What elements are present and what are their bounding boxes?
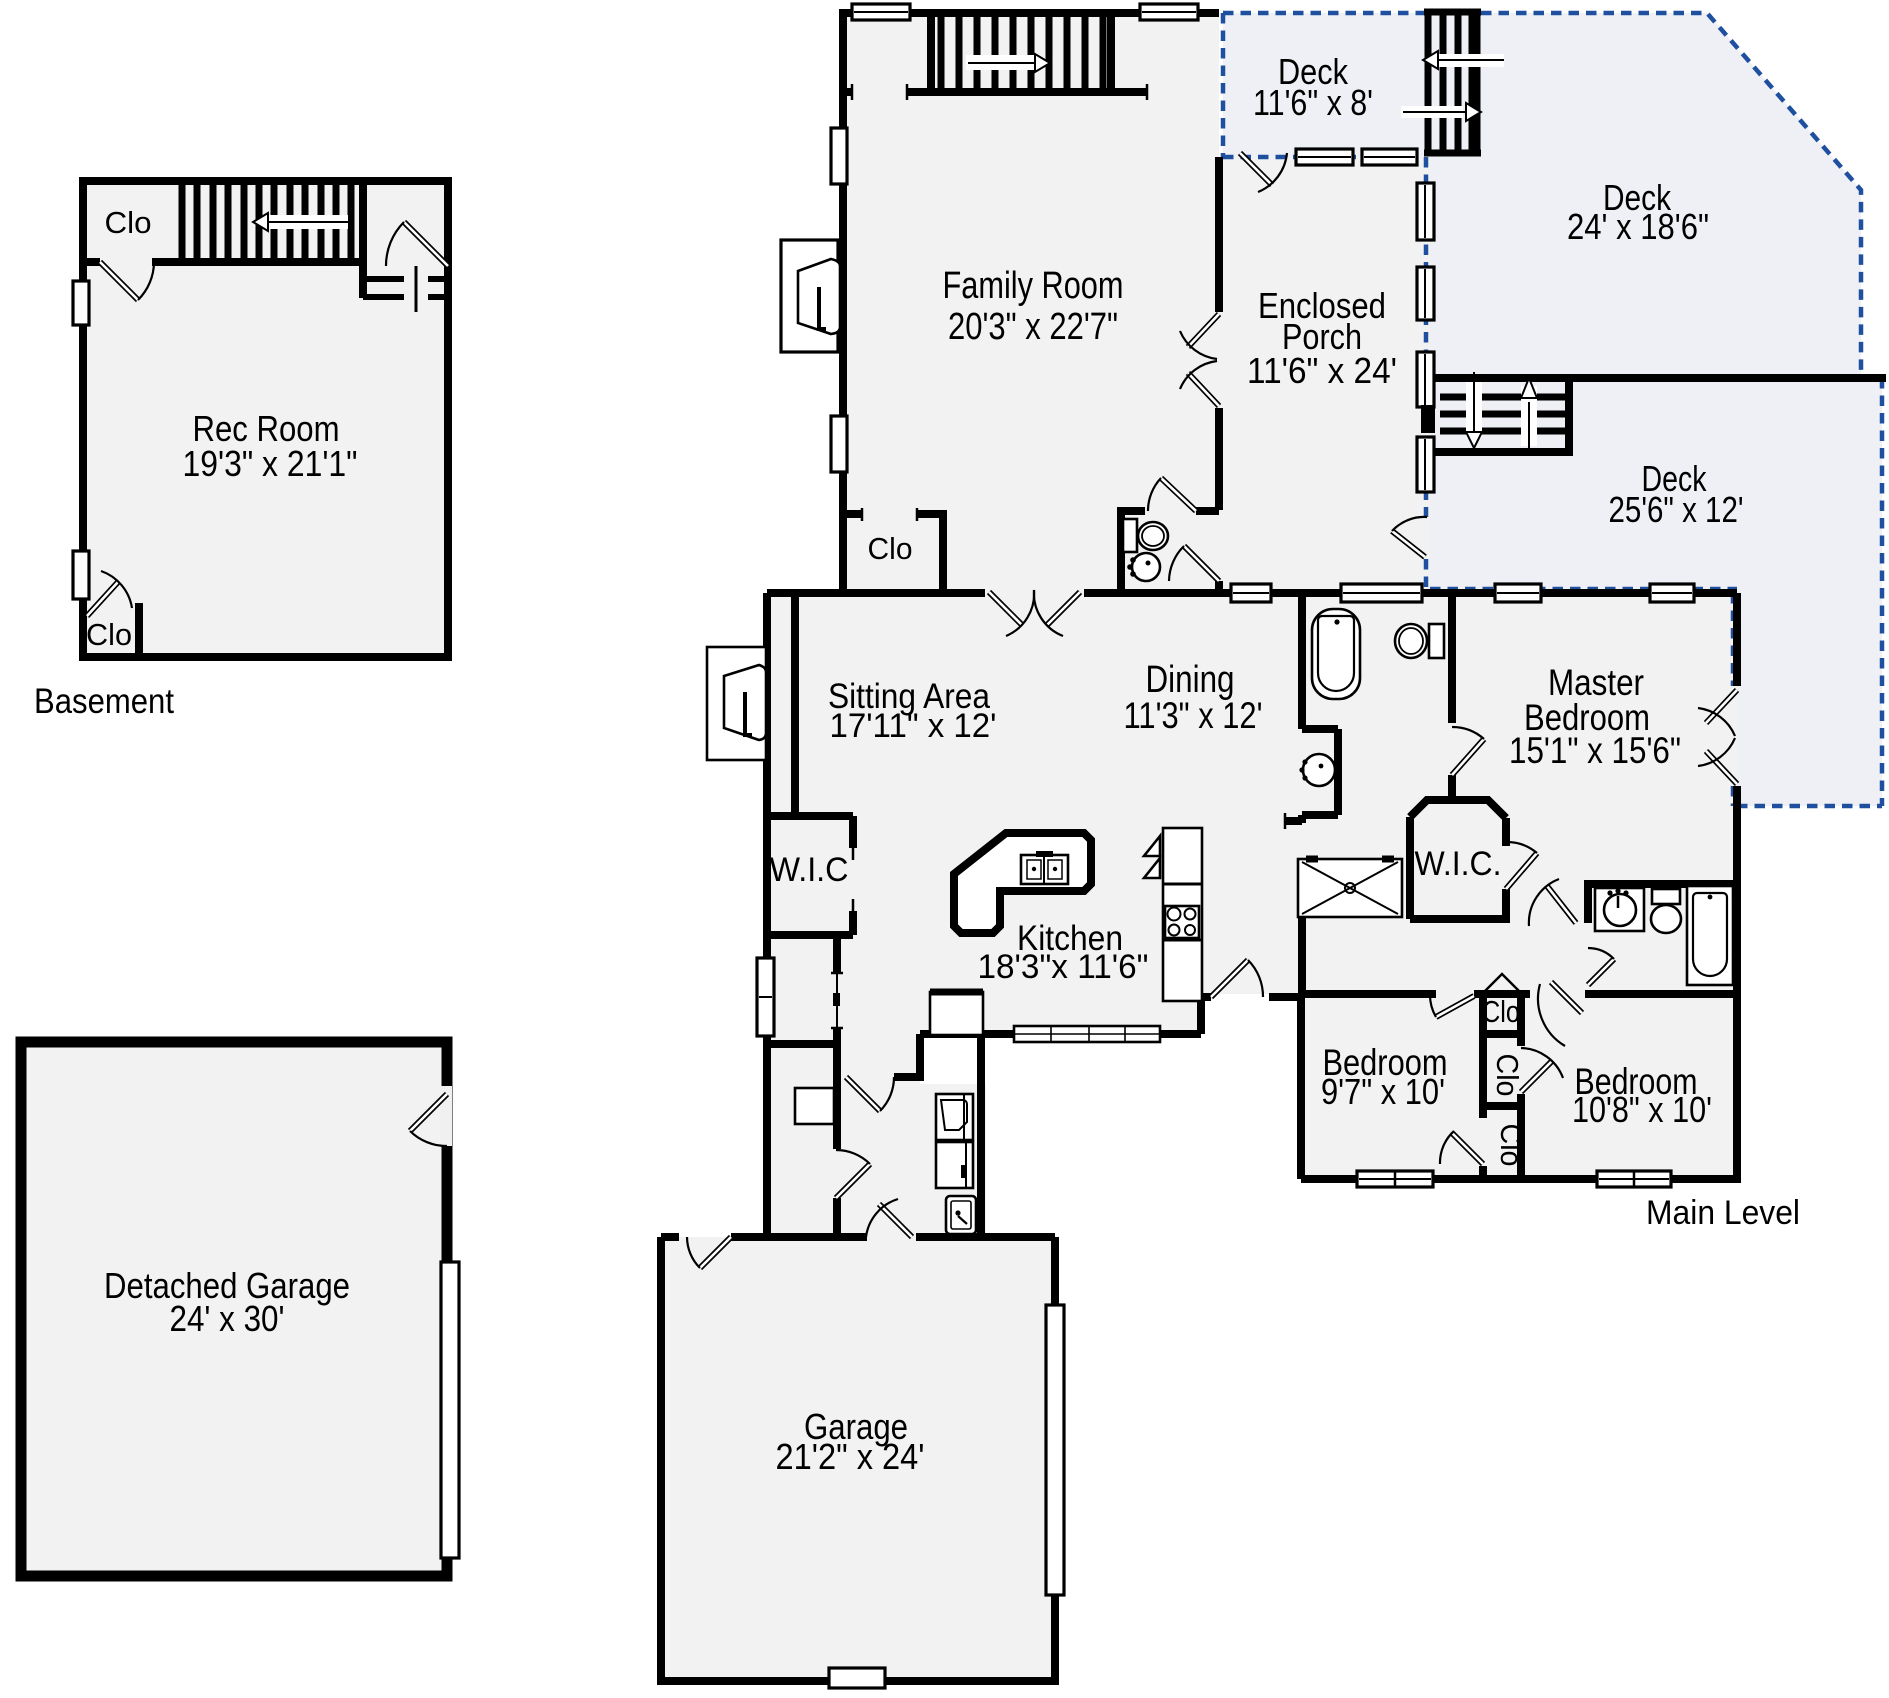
svg-text:24' x 30': 24' x 30' [170,1298,285,1339]
svg-text:24' x 18'6": 24' x 18'6" [1567,206,1709,247]
svg-text:Clo: Clo [1490,1054,1525,1097]
svg-text:9'7" x 10': 9'7" x 10' [1321,1071,1445,1112]
svg-text:11'6" x 24': 11'6" x 24' [1247,350,1397,391]
svg-text:Clo: Clo [105,205,152,240]
svg-text:Clo: Clo [1494,1124,1529,1167]
svg-text:19'3" x 21'1": 19'3" x 21'1" [183,443,358,484]
svg-text:11'6" x 8': 11'6" x 8' [1253,82,1373,123]
svg-text:Basement: Basement [34,682,174,721]
svg-text:W.I.C.: W.I.C. [1415,845,1502,883]
svg-text:W.I.C: W.I.C [770,851,849,889]
svg-text:Family Room: Family Room [943,265,1124,307]
svg-text:20'3" x 22'7": 20'3" x 22'7" [948,306,1118,348]
svg-text:15'1" x 15'6": 15'1" x 15'6" [1509,730,1681,771]
svg-text:10'8" x 10': 10'8" x 10' [1572,1089,1712,1130]
svg-text:17'11" x 12': 17'11" x 12' [830,707,997,745]
svg-text:Clo: Clo [868,531,913,566]
svg-text:Main Level: Main Level [1646,1194,1800,1232]
svg-text:25'6" x 12': 25'6" x 12' [1609,489,1744,530]
svg-text:18'3"x 11'6": 18'3"x 11'6" [978,948,1149,986]
svg-text:21'2" x 24': 21'2" x 24' [776,1436,925,1477]
svg-text:11'3" x 12': 11'3" x 12' [1124,695,1263,736]
svg-text:Clo: Clo [86,617,132,652]
svg-text:Clo: Clo [1482,994,1520,1029]
